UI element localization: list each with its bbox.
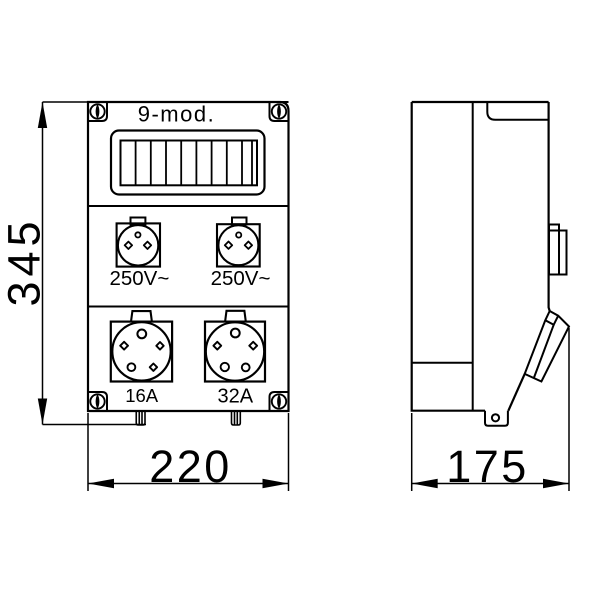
svg-text:32A: 32A (218, 386, 254, 408)
svg-text:16A: 16A (125, 385, 159, 406)
svg-text:175: 175 (446, 441, 529, 492)
svg-text:220: 220 (149, 441, 232, 492)
svg-text:250V~: 250V~ (109, 267, 169, 290)
svg-text:250V~: 250V~ (211, 267, 271, 290)
svg-text:345: 345 (0, 216, 50, 306)
svg-text:9-mod.: 9-mod. (138, 102, 215, 127)
